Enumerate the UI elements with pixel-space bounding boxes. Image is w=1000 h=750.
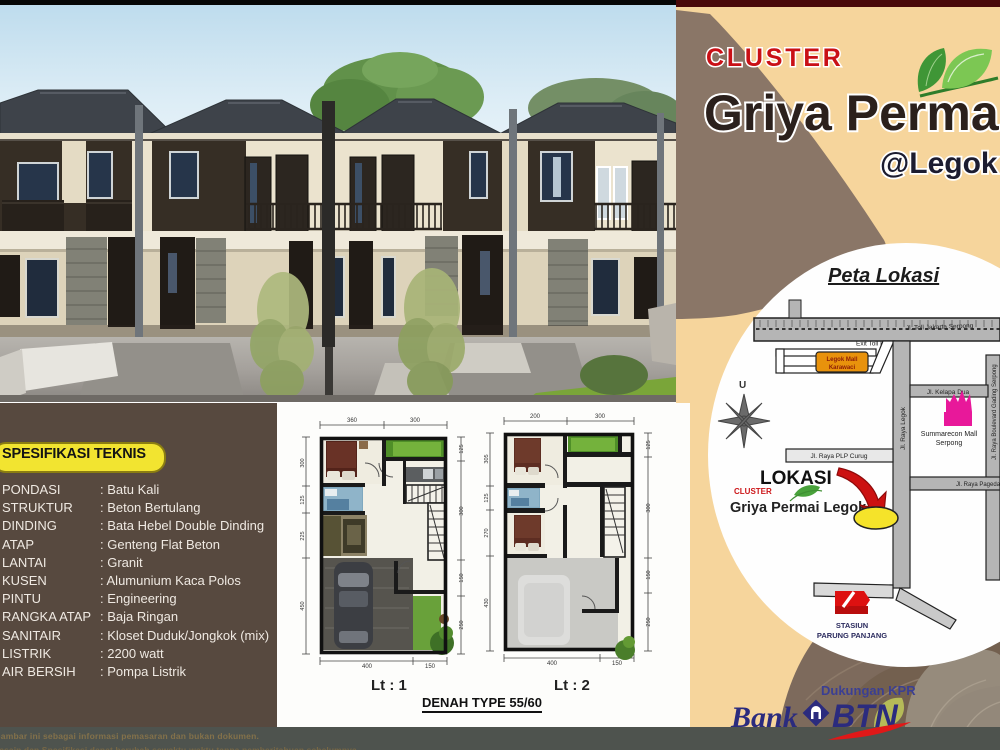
svg-text:@Legok: @Legok xyxy=(880,147,998,180)
svg-text:450: 450 xyxy=(300,601,306,610)
svg-text:PARUNG PANJANG: PARUNG PANJANG xyxy=(817,631,887,640)
svg-text:300: 300 xyxy=(410,418,421,424)
svg-text:CLUSTER: CLUSTER xyxy=(734,487,772,496)
svg-text:300: 300 xyxy=(595,414,606,420)
svg-text:Summarecon Mall: Summarecon Mall xyxy=(921,431,978,438)
svg-text:250: 250 xyxy=(646,617,652,626)
svg-text:Dukungan KPR: Dukungan KPR xyxy=(821,683,916,698)
svg-text:225: 225 xyxy=(300,531,306,540)
svg-text:300: 300 xyxy=(646,503,652,512)
svg-text:Peta Lokasi: Peta Lokasi xyxy=(828,265,940,287)
svg-text:150: 150 xyxy=(459,573,465,582)
svg-text:Legok Mall: Legok Mall xyxy=(826,357,857,363)
svg-text:Jl. Raya Boulevard Gading Serp: Jl. Raya Boulevard Gading Serpong xyxy=(992,364,998,460)
svg-text:300: 300 xyxy=(300,458,306,467)
svg-text:125: 125 xyxy=(459,444,465,453)
svg-text:250: 250 xyxy=(459,620,465,629)
svg-text:150: 150 xyxy=(425,664,436,670)
svg-text:CLUSTER: CLUSTER xyxy=(706,44,844,72)
svg-text:305: 305 xyxy=(484,454,490,463)
svg-text:125: 125 xyxy=(484,493,490,502)
svg-text:150: 150 xyxy=(646,570,652,579)
svg-text:Serpong: Serpong xyxy=(936,440,963,447)
svg-text:Griya Permai Legok: Griya Permai Legok xyxy=(730,500,867,516)
svg-text:STASIUN: STASIUN xyxy=(836,621,868,630)
svg-text:430: 430 xyxy=(484,598,490,607)
svg-text:Griya Permai: Griya Permai xyxy=(704,85,1000,141)
svg-text:400: 400 xyxy=(362,664,373,670)
svg-text:300: 300 xyxy=(459,506,465,515)
svg-text:150: 150 xyxy=(612,661,623,667)
svg-text:LOKASI: LOKASI xyxy=(760,468,832,489)
svg-text:Bank: Bank xyxy=(730,701,798,734)
svg-text:270: 270 xyxy=(484,528,490,537)
svg-text:360: 360 xyxy=(347,418,358,424)
svg-text:U: U xyxy=(739,380,746,391)
svg-text:Karawaci: Karawaci xyxy=(829,365,856,371)
svg-text:200: 200 xyxy=(530,414,541,420)
svg-text:400: 400 xyxy=(547,661,558,667)
svg-text:125: 125 xyxy=(646,440,652,449)
svg-text:Jl. Raya Legok: Jl. Raya Legok xyxy=(900,406,907,450)
svg-text:Jl. Raya Pagedangan: Jl. Raya Pagedangan xyxy=(956,482,1000,488)
svg-text:125: 125 xyxy=(300,495,306,504)
svg-text:Jl. Raya PLP Curug: Jl. Raya PLP Curug xyxy=(811,453,868,460)
